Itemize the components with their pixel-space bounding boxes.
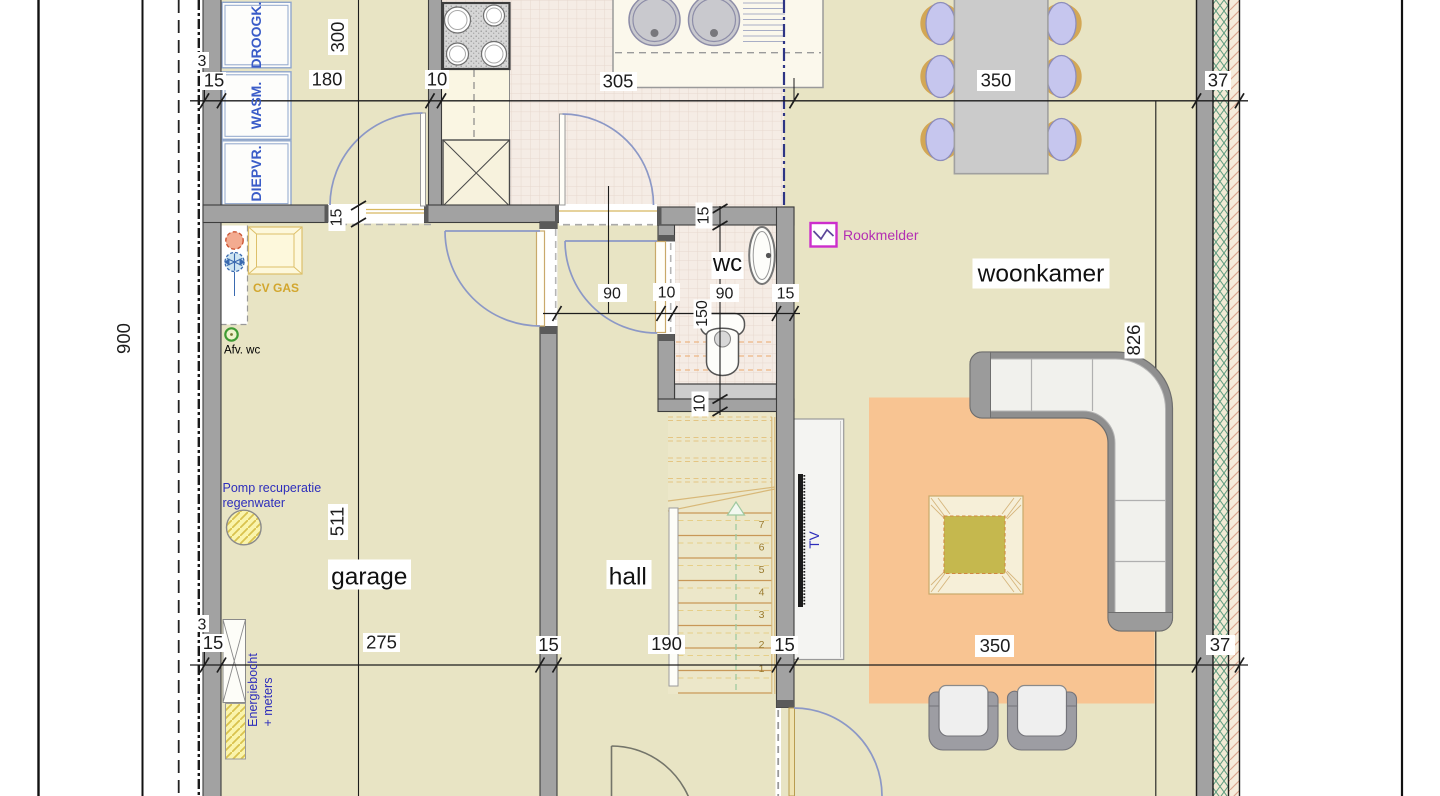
svg-text:10: 10 <box>658 285 676 302</box>
svg-text:5: 5 <box>759 564 765 576</box>
svg-text:4: 4 <box>759 587 765 599</box>
svg-text:90: 90 <box>603 286 621 303</box>
svg-text:DIEPVR.: DIEPVR. <box>248 145 264 201</box>
svg-text:Energiebocht: Energiebocht <box>246 653 260 727</box>
svg-text:CV GAS: CV GAS <box>253 281 299 295</box>
svg-text:90: 90 <box>716 286 734 303</box>
svg-text:regenwater: regenwater <box>223 496 286 510</box>
svg-text:DROOGK.: DROOGK. <box>248 2 264 69</box>
svg-text:Pomp recuperatie: Pomp recuperatie <box>223 481 322 495</box>
svg-text:37: 37 <box>1208 70 1229 91</box>
svg-text:+ meters: + meters <box>261 678 275 727</box>
svg-text:wc: wc <box>712 250 742 277</box>
svg-text:Rookmelder: Rookmelder <box>843 227 919 243</box>
svg-text:150: 150 <box>694 300 711 327</box>
svg-text:hall: hall <box>609 564 647 591</box>
svg-text:350: 350 <box>981 70 1012 91</box>
svg-text:15: 15 <box>204 70 225 91</box>
svg-text:6: 6 <box>759 542 765 554</box>
svg-text:15: 15 <box>329 209 346 227</box>
svg-text:15: 15 <box>538 634 559 655</box>
svg-text:7: 7 <box>759 519 765 531</box>
svg-text:15: 15 <box>777 286 795 303</box>
svg-text:350: 350 <box>980 635 1011 656</box>
svg-text:15: 15 <box>696 207 713 225</box>
svg-text:37: 37 <box>1210 634 1231 655</box>
svg-text:2: 2 <box>759 639 765 651</box>
svg-text:300: 300 <box>327 22 348 53</box>
svg-text:180: 180 <box>312 69 343 90</box>
svg-text:826: 826 <box>1123 325 1144 356</box>
svg-text:900: 900 <box>113 323 134 354</box>
svg-text:10: 10 <box>427 69 448 90</box>
svg-text:3: 3 <box>198 53 207 70</box>
svg-text:3: 3 <box>759 609 765 621</box>
svg-text:15: 15 <box>203 632 224 653</box>
svg-text:woonkamer: woonkamer <box>977 261 1105 288</box>
svg-text:garage: garage <box>331 564 407 591</box>
svg-text:190: 190 <box>651 633 682 654</box>
svg-text:10: 10 <box>692 395 709 413</box>
svg-text:Afv. wc: Afv. wc <box>224 345 260 357</box>
svg-text:TV: TV <box>807 531 822 548</box>
svg-text:275: 275 <box>366 632 397 653</box>
svg-text:15: 15 <box>774 634 795 655</box>
svg-text:WASM.: WASM. <box>248 82 264 129</box>
svg-text:305: 305 <box>603 71 634 92</box>
svg-text:511: 511 <box>327 507 348 537</box>
svg-text:3: 3 <box>198 617 207 634</box>
